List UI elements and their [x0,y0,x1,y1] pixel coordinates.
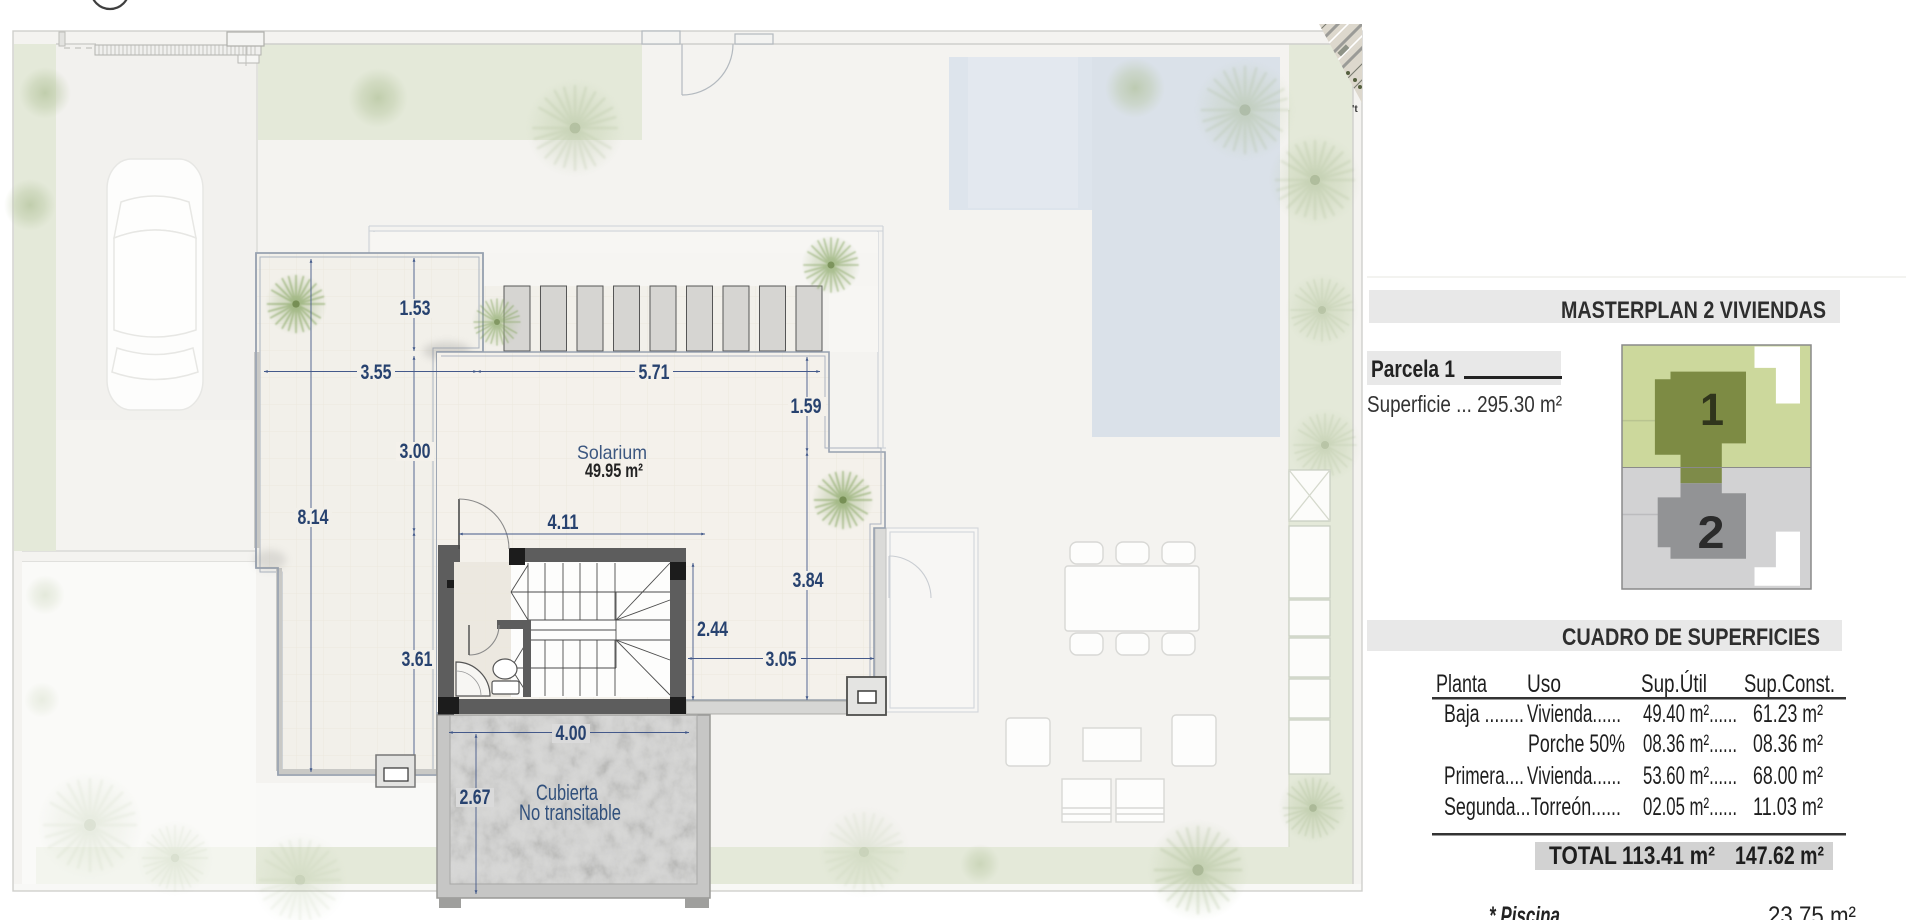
svg-text:61.23 m²: 61.23 m² [1753,700,1823,728]
svg-text:49.40 m²......: 49.40 m²...... [1643,700,1737,728]
svg-text:Uso: Uso [1527,670,1561,698]
svg-text:CUADRO DE SUPERFICIES: CUADRO DE SUPERFICIES [1562,624,1820,651]
svg-text:Porche 50%: Porche 50% [1528,730,1625,758]
svg-text:Vivienda......: Vivienda...... [1527,762,1621,790]
svg-text:Primera....: Primera.... [1444,762,1524,790]
svg-text:Sup.Const.: Sup.Const. [1744,670,1835,698]
svg-text:53.60 m²......: 53.60 m²...... [1643,762,1737,790]
svg-text:113.41 m²: 113.41 m² [1622,842,1715,870]
svg-text:11.03 m²: 11.03 m² [1753,793,1823,821]
svg-text:Baja ........: Baja ........ [1444,700,1524,728]
svg-text:08.36 m²: 08.36 m² [1753,730,1823,758]
svg-text:68.00 m²: 68.00 m² [1753,762,1823,790]
svg-text:Superficie ... 295.30 m²: Superficie ... 295.30 m² [1367,391,1562,417]
svg-text:Vivienda......: Vivienda...... [1527,700,1621,728]
svg-text:Parcela 1: Parcela 1 [1371,356,1455,383]
svg-text:Planta: Planta [1436,670,1487,698]
svg-text:2: 2 [1698,507,1725,558]
svg-text:* Piscina: * Piscina [1489,902,1560,920]
svg-text:MASTERPLAN 2 VIVIENDAS: MASTERPLAN 2 VIVIENDAS [1561,297,1826,324]
svg-text:TOTAL: TOTAL [1549,842,1617,870]
svg-text:23.75 m²: 23.75 m² [1768,902,1856,920]
svg-text:Sup.Útil: Sup.Útil [1641,669,1707,698]
svg-text:08.36 m²......: 08.36 m²...... [1643,730,1737,758]
svg-text:147.62 m²: 147.62 m² [1735,842,1824,870]
svg-text:1: 1 [1700,384,1724,435]
svg-text:Segunda...Torreón......: Segunda...Torreón...... [1444,793,1621,821]
svg-text:02.05 m²......: 02.05 m²...... [1643,793,1737,821]
